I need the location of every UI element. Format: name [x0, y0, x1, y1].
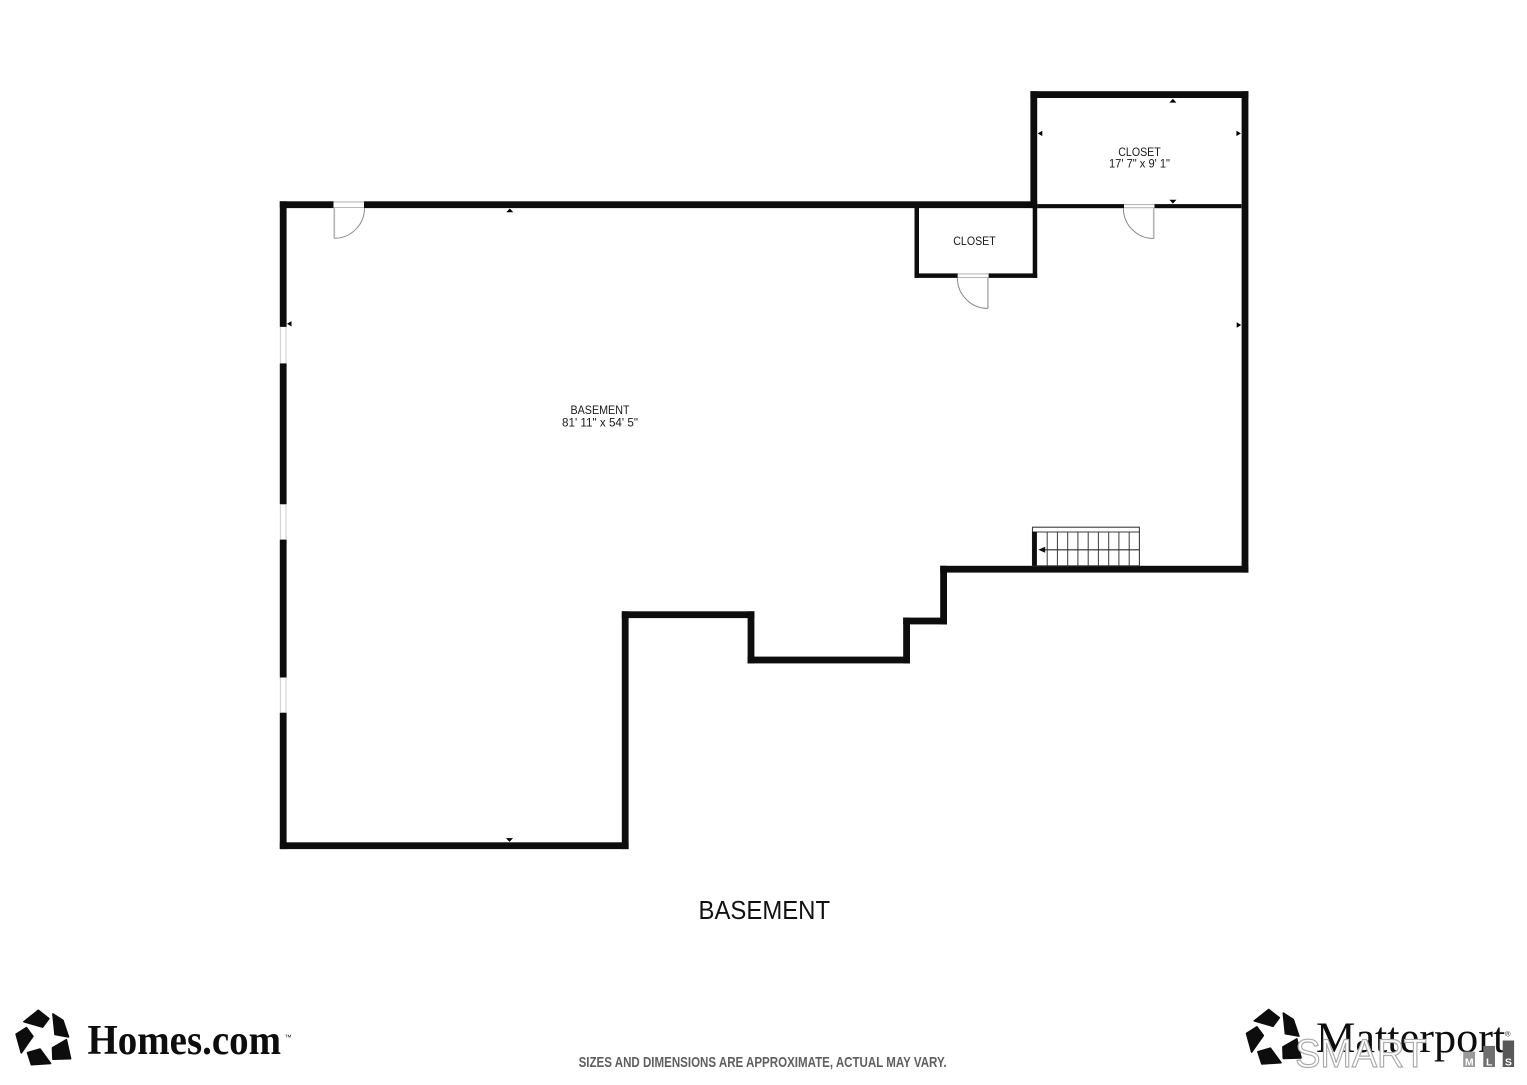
svg-text:Homes.com: Homes.com — [88, 1017, 282, 1064]
svg-text:L: L — [1486, 1057, 1493, 1069]
svg-text:™: ™ — [285, 1035, 292, 1042]
svg-text:SMART: SMART — [1295, 1032, 1427, 1076]
svg-text:17' 7" x 9' 1": 17' 7" x 9' 1" — [1109, 157, 1170, 171]
svg-text:S: S — [1505, 1057, 1512, 1069]
svg-text:BASEMENT: BASEMENT — [699, 895, 831, 925]
svg-text:SIZES AND DIMENSIONS ARE APPRO: SIZES AND DIMENSIONS ARE APPROXIMATE, AC… — [579, 1054, 947, 1071]
svg-text:CLOSET: CLOSET — [953, 234, 996, 248]
svg-text:81' 11" x 54' 5": 81' 11" x 54' 5" — [562, 415, 638, 429]
svg-text:M: M — [1465, 1057, 1474, 1069]
svg-text:®: ® — [1505, 1030, 1511, 1039]
